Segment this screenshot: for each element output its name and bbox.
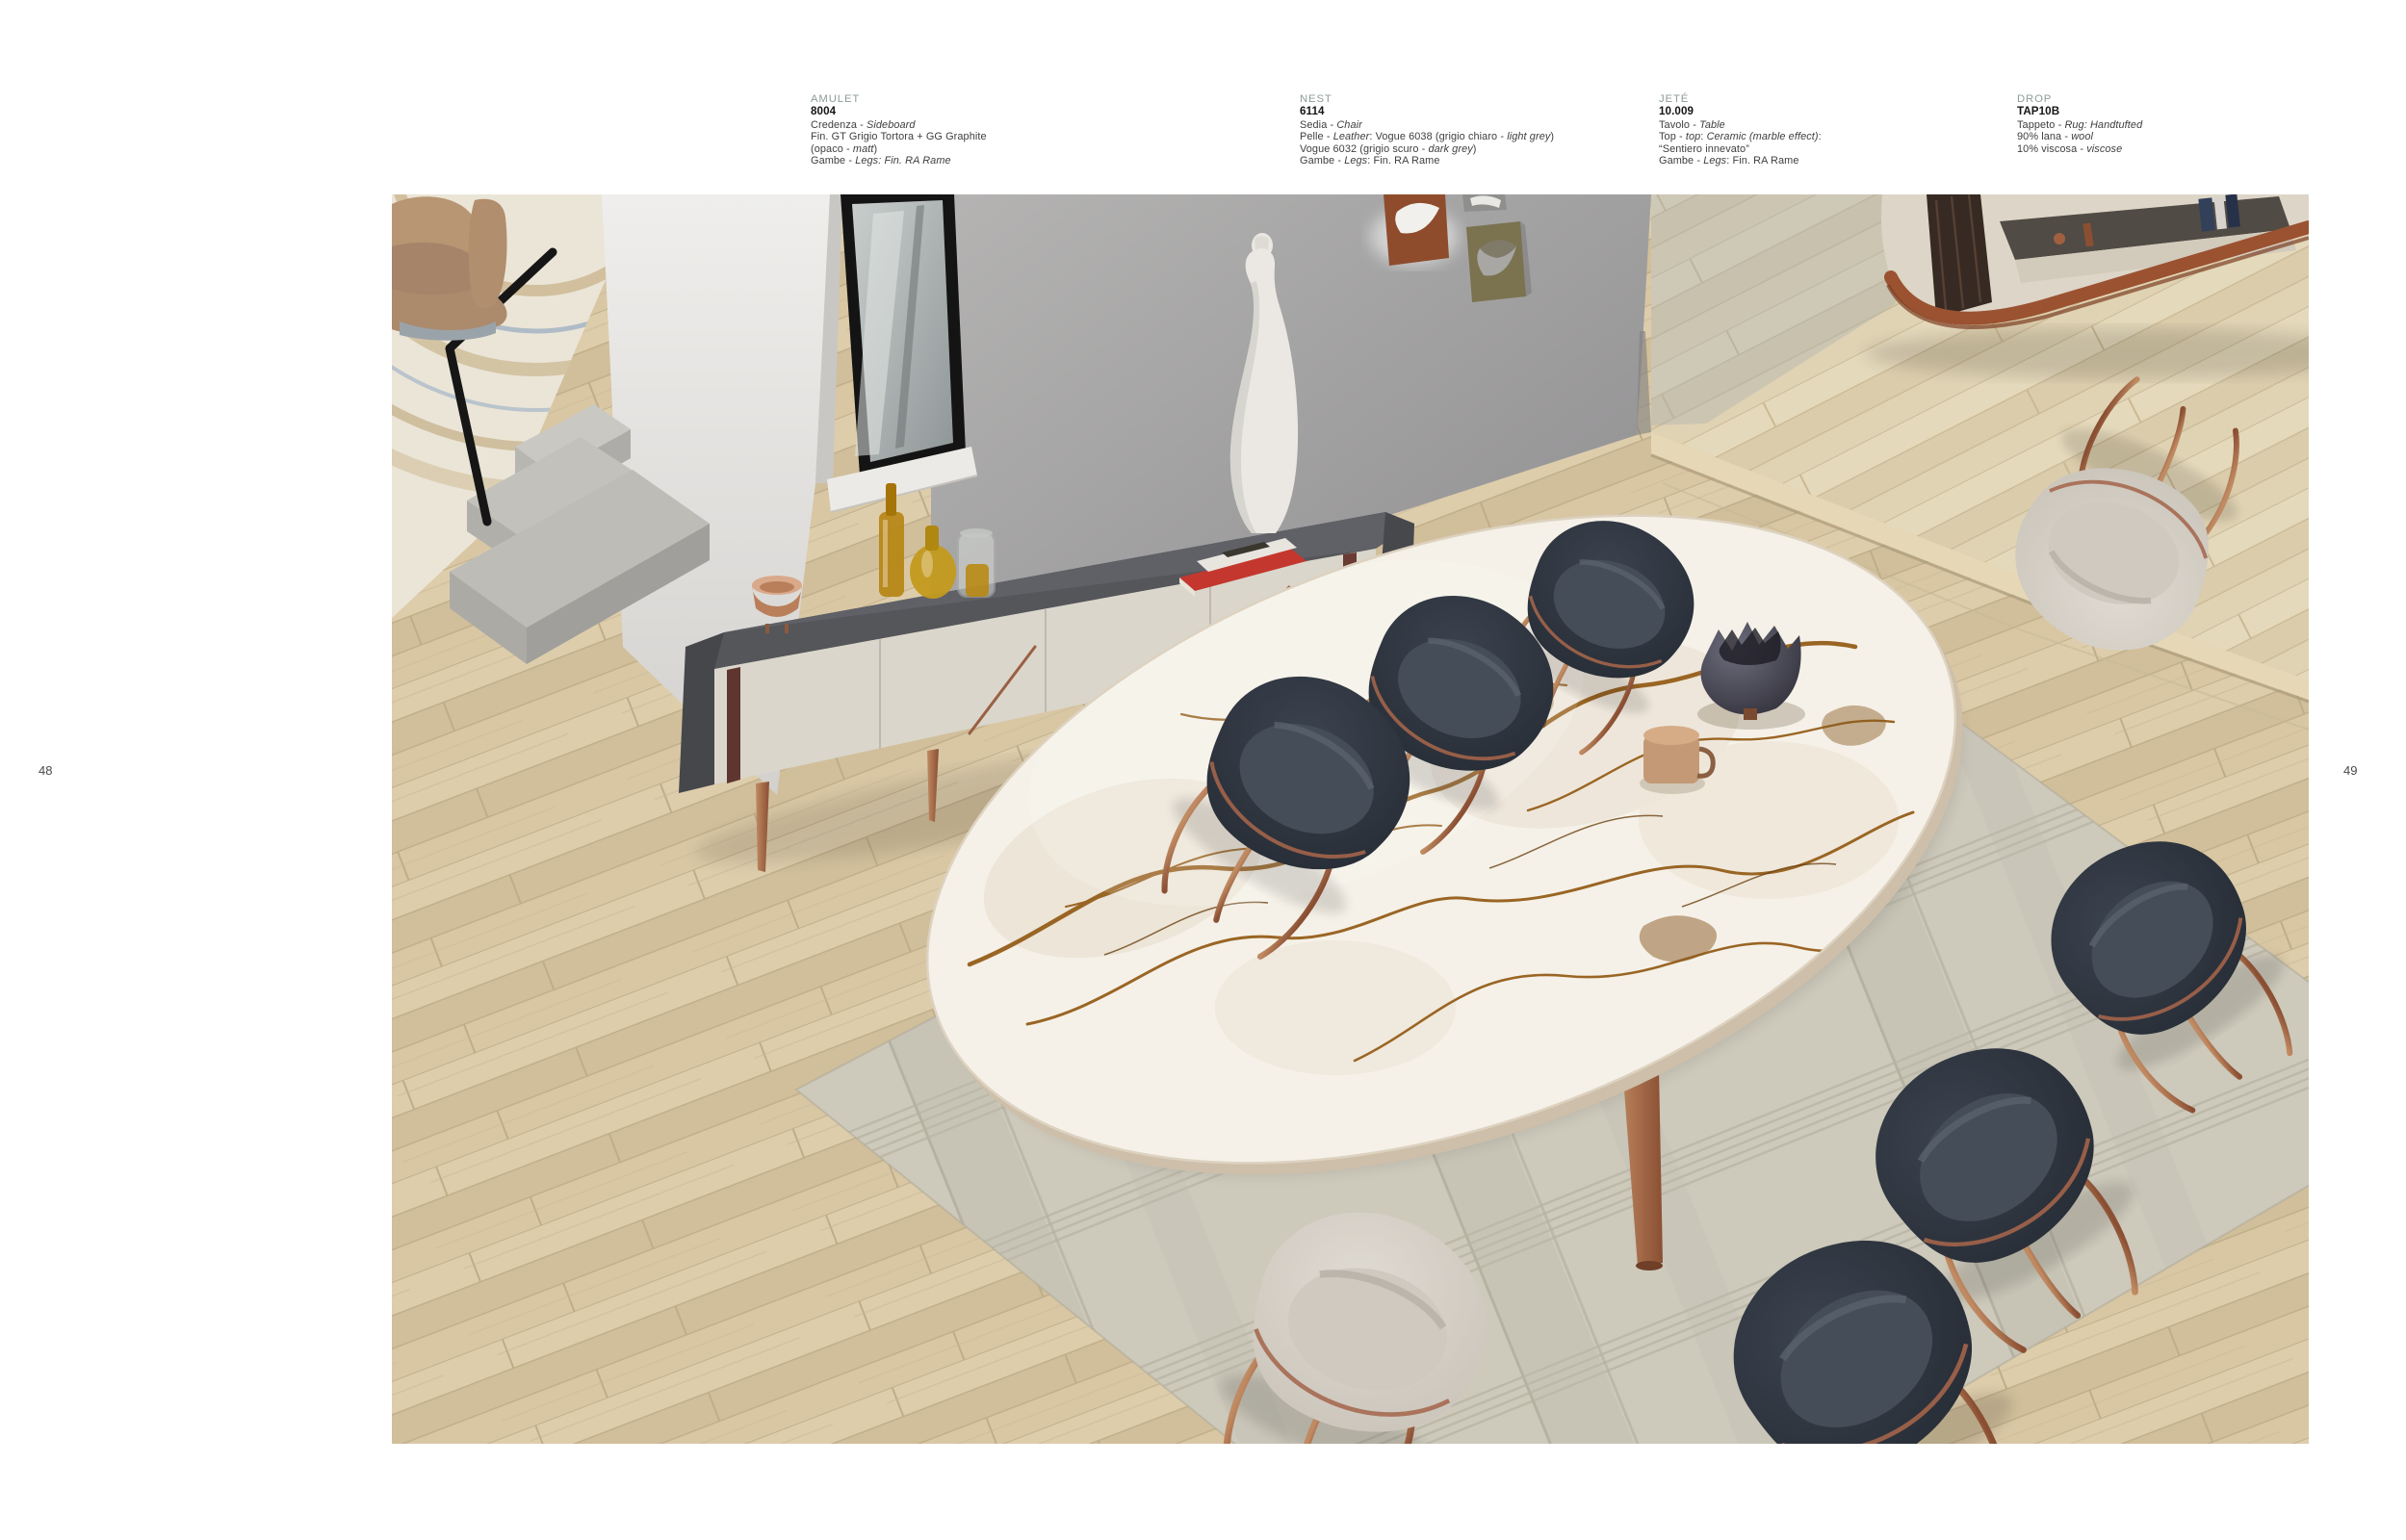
product-spec-line: Credenza - Sideboard [811,119,1128,131]
product-spec-line: Pelle - Leather: Vogue 6038 (grigio chia… [1300,131,1617,142]
product-spec-line: 10% viscosa - viscose [2017,143,2335,155]
product-info-amulet: AMULET 8004 Credenza - Sideboard Fin. GT… [811,93,1128,167]
product-spec-line: Gambe - Legs: Fin. RA Rame [1300,155,1617,167]
product-spec-line: Gambe - Legs: Fin. RA Rame [811,155,1128,167]
product-spec-line: (opaco - matt) [811,143,1128,155]
product-name: NEST [1300,93,1617,105]
product-spec-line: 90% lana - wool [2017,131,2335,142]
product-code: TAP10B [2017,106,2335,117]
product-spec-line: Vogue 6032 (grigio scuro - dark grey) [1300,143,1617,155]
product-info-nest: NEST 6114 Sedia - Chair Pelle - Leather:… [1300,93,1617,167]
catalog-spread: AMULET 8004 Credenza - Sideboard Fin. GT… [0,0,2406,1540]
product-spec-line: Top - top: Ceramic (marble effect): [1659,131,1977,142]
product-name: DROP [2017,93,2335,105]
catalog-photo [392,194,2309,1444]
page-number-right: 49 [2343,763,2357,778]
product-spec-line: Fin. GT Grigio Tortora + GG Graphite [811,131,1128,142]
product-spec-line: Sedia - Chair [1300,119,1617,131]
product-code: 10.009 [1659,106,1977,117]
product-code: 8004 [811,106,1128,117]
product-code: 6114 [1300,106,1617,117]
room-scene [392,194,2309,1444]
product-spec-line: “Sentiero innevato” [1659,143,1977,155]
product-name: JETÉ [1659,93,1977,105]
armchair [392,196,507,340]
product-info-jete: JETÉ 10.009 Tavolo - Table Top - top: Ce… [1659,93,1977,167]
product-spec-line: Gambe - Legs: Fin. RA Rame [1659,155,1977,167]
page-number-left: 48 [39,763,52,778]
product-info-drop: DROP TAP10B Tappeto - Rug: Handtufted 90… [2017,93,2335,155]
product-spec-line: Tavolo - Table [1659,119,1977,131]
product-name: AMULET [811,93,1128,105]
product-spec-line: Tappeto - Rug: Handtufted [2017,119,2335,131]
